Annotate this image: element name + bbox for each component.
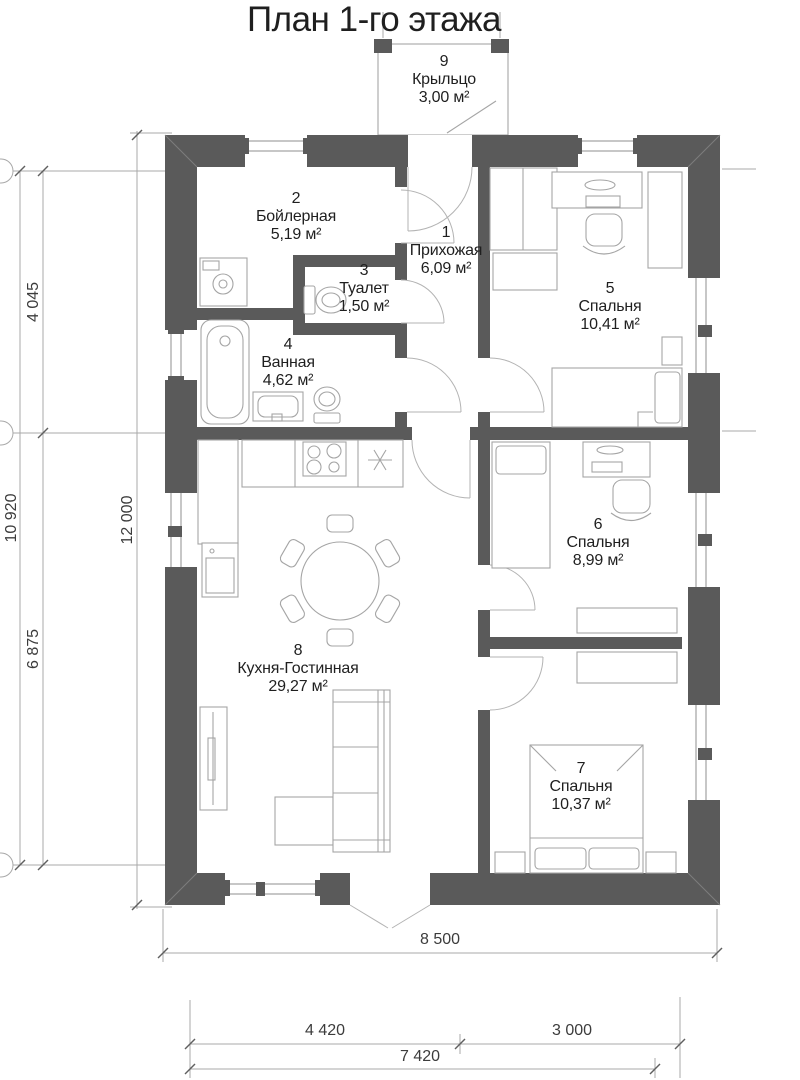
stove-icon: [303, 442, 346, 476]
desk-icon: [552, 172, 642, 208]
porch-post: [374, 39, 392, 53]
room-label-toilet: 3 Туалет 1,50 м²: [339, 262, 390, 316]
room-label-porch: 9 Крыльцо 3,00 м²: [412, 53, 476, 107]
room-label-hallway: 1 Прихожая 6,09 м²: [410, 224, 483, 278]
room-name: Ванная: [261, 354, 315, 372]
washing-machine-icon: [200, 258, 247, 306]
kitchen-counter-icon: [198, 440, 403, 544]
kitchen-sink-icon: [368, 450, 392, 470]
desk-icon: [583, 442, 650, 477]
room-name: Спальня: [550, 778, 613, 796]
room-name: Спальня: [567, 534, 630, 552]
chair-icon: [583, 214, 625, 254]
room-label-bedroom-6: 6 Спальня 8,99 м²: [567, 516, 630, 570]
bedroom6-door-icon: [490, 565, 535, 610]
room-number: 1: [410, 224, 483, 242]
room-area: 3,00 м²: [412, 89, 476, 107]
fridge-icon: [202, 543, 238, 597]
dim-left-inner-total: 10 920: [3, 494, 21, 543]
sofa-icon: [275, 690, 390, 852]
room-area: 1,50 м²: [339, 298, 390, 316]
room-name: Крыльцо: [412, 71, 476, 89]
bedroom5-door-icon: [490, 358, 544, 412]
chair-icon: [611, 480, 651, 521]
room-number: 2: [256, 190, 336, 208]
bathroom-sink-icon: [253, 392, 303, 421]
room-name: Бойлерная: [256, 208, 336, 226]
room-area: 29,27 м²: [237, 678, 358, 696]
room-name: Кухня-Гостинная: [237, 660, 358, 678]
room-label-boiler: 2 Бойлерная 5,19 м²: [256, 190, 336, 244]
room-number: 5: [579, 280, 642, 298]
entry-door-icon: [408, 167, 472, 231]
room-number: 6: [567, 516, 630, 534]
dining-table-icon: [279, 515, 402, 646]
room-label-bedroom-7: 7 Спальня 10,37 м²: [550, 760, 613, 814]
room-area: 10,41 м²: [579, 316, 642, 334]
toilet-door-icon: [401, 280, 444, 323]
room-number: 3: [339, 262, 390, 280]
porch-post: [491, 39, 509, 53]
room-name: Спальня: [579, 298, 642, 316]
room-name: Туалет: [339, 280, 390, 298]
bathroom-door-icon: [407, 358, 461, 412]
room-label-bedroom-5: 5 Спальня 10,41 м²: [579, 280, 642, 334]
room-area: 6,09 м²: [410, 260, 483, 278]
bed-icon: [492, 442, 550, 568]
room-number: 4: [261, 336, 315, 354]
dim-bottom-total: 8 500: [420, 931, 460, 949]
room-label-kitchen-living: 8 Кухня-Гостинная 29,27 м²: [237, 642, 358, 696]
page-title: План 1-го этажа: [247, 0, 501, 40]
dim-left-bottom-segment: 6 875: [25, 629, 43, 669]
room-area: 10,37 м²: [550, 796, 613, 814]
tv-stand-icon: [200, 707, 227, 810]
bed-icon: [552, 337, 682, 427]
french-door-icon: [350, 905, 430, 928]
dim-bottom-inner-total: 7 420: [400, 1048, 440, 1066]
dim-bottom-left-segment: 4 420: [305, 1022, 345, 1040]
toilet-icon: [314, 387, 340, 423]
bathtub-icon: [201, 320, 249, 424]
wardrobe-icon: [577, 652, 677, 683]
room-area: 5,19 м²: [256, 226, 336, 244]
dim-left-outer-total: 12 000: [119, 496, 137, 545]
room-number: 8: [237, 642, 358, 660]
room-name: Прихожая: [410, 242, 483, 260]
room-label-bathroom: 4 Ванная 4,62 м²: [261, 336, 315, 390]
dim-bottom-right-segment: 3 000: [552, 1022, 592, 1040]
dim-left-top-segment: 4 045: [25, 282, 43, 322]
wardrobe-icon: [577, 608, 677, 633]
kitchen-door-icon: [412, 440, 470, 498]
floor-plan-page: План 1-го этажа 1 Прихожая 6,09 м² 2 Бой…: [0, 0, 800, 1080]
room-number: 7: [550, 760, 613, 778]
room-number: 9: [412, 53, 476, 71]
room-area: 4,62 м²: [261, 372, 315, 390]
room-area: 8,99 м²: [567, 552, 630, 570]
bedroom7-door-icon: [490, 657, 543, 710]
